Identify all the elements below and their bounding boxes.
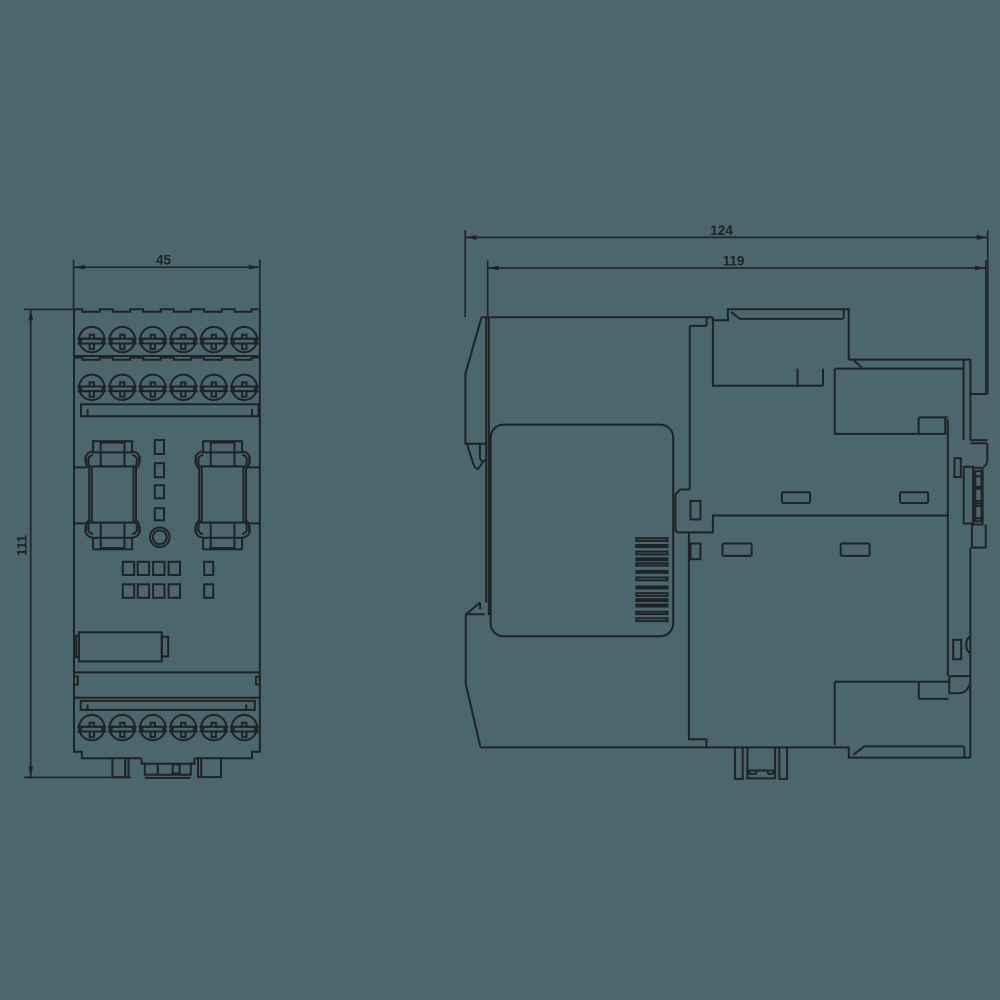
svg-text:111: 111 [14, 535, 29, 556]
svg-text:119: 119 [723, 253, 745, 268]
svg-text:45: 45 [156, 253, 171, 268]
svg-text:124: 124 [710, 223, 733, 238]
